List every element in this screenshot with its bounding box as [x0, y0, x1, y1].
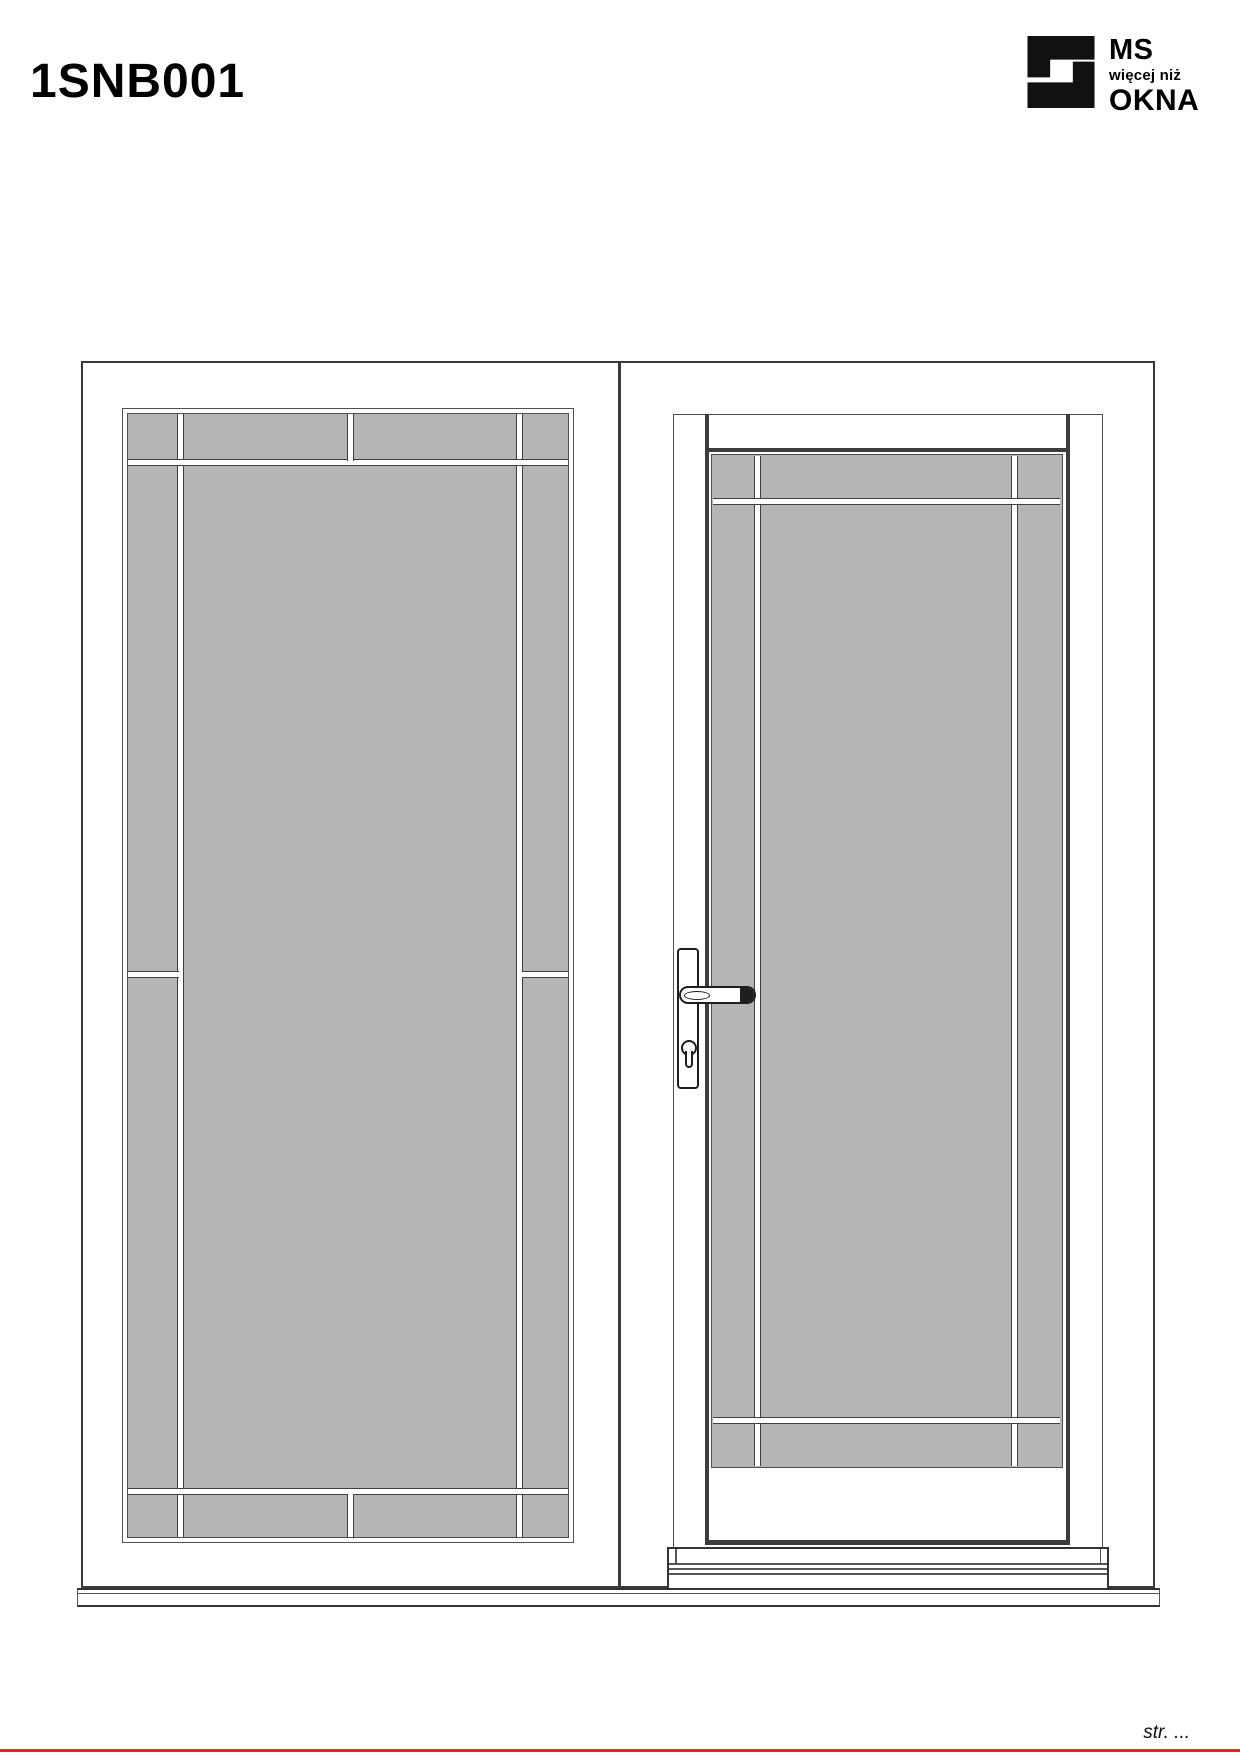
- sidelight-muntin-stub-top-center: [347, 414, 354, 461]
- sidelight-muntin-stub-bottom-center: [347, 1494, 354, 1537]
- logo-text: MS więcej niż OKNA: [1109, 36, 1199, 116]
- keyhole-slot: [685, 1051, 693, 1068]
- door-muntin-horizontal-bottom: [713, 1417, 1060, 1424]
- handle-lever: [679, 986, 756, 1004]
- page-number-label: str. ...: [1143, 1722, 1190, 1744]
- threshold-end-cap-right: [1100, 1549, 1102, 1564]
- door-muntin-vertical-right: [1011, 456, 1018, 1466]
- page-title: 1SNB001: [30, 54, 245, 109]
- threshold-profile-line: [669, 1568, 1107, 1570]
- window-sill: [77, 1588, 1160, 1607]
- threshold-profile-line: [669, 1573, 1107, 1575]
- ms-okna-block-s-icon: [1026, 36, 1096, 108]
- ms-okna-logo: MS więcej niż OKNA: [1026, 36, 1199, 116]
- logo-brand-top: MS: [1109, 36, 1199, 65]
- catalog-page: 1SNB001 MS więcej niż OKNA: [0, 0, 1240, 1755]
- handle-pivot-detail: [684, 991, 710, 1000]
- door-leaf-bottom-edge: [705, 1540, 1070, 1545]
- sidelight-muntin-stub-middle-right: [522, 971, 568, 978]
- sidelight-muntin-stub-middle-left: [128, 971, 179, 978]
- door-threshold: [667, 1547, 1109, 1590]
- door-muntin-vertical-left: [754, 456, 761, 1466]
- logo-brand-bottom: OKNA: [1109, 86, 1199, 116]
- handle-lever-tip: [740, 988, 754, 1002]
- door-leaf-gap-right: [1066, 414, 1070, 1545]
- door-leaf-gap-left: [705, 414, 709, 1545]
- door-muntin-horizontal-top: [713, 498, 1060, 505]
- threshold-profile-line: [669, 1563, 1107, 1565]
- mullion-divider-line: [618, 361, 621, 1588]
- footer-rule: [0, 1749, 1240, 1752]
- threshold-end-cap-left: [675, 1549, 677, 1564]
- sill-profile-line: [78, 1593, 1159, 1594]
- door-leaf-gap-top: [705, 448, 1070, 452]
- sidelight-glass: [127, 413, 569, 1538]
- logo-brand-middle: więcej niż: [1109, 68, 1199, 83]
